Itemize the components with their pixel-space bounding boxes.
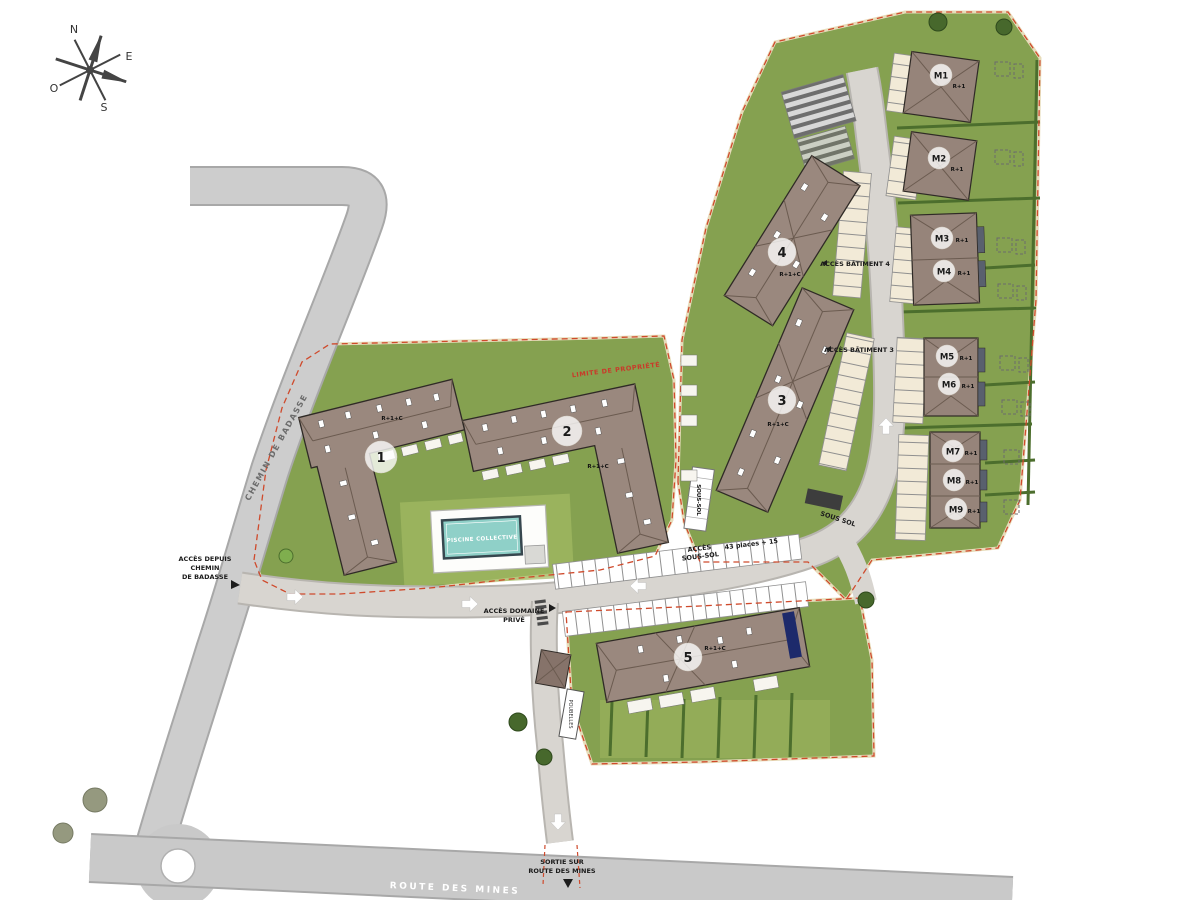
- acces-badasse-line3: DE BADASSE: [182, 573, 228, 581]
- house-m3-number: M3: [935, 235, 949, 245]
- compass-s: S: [101, 101, 108, 114]
- building-2-storeys: R+1+C: [587, 464, 608, 470]
- building-4-number: 4: [777, 246, 786, 261]
- acces-badasse-line2: CHEMIN: [191, 564, 220, 572]
- site-plan-svg: PISCINE COLLECTIVE SOUS-SOL 1 R+1+C: [0, 0, 1200, 900]
- acces-bat4-label: ACCÈS BÂTIMENT 4: [820, 259, 890, 268]
- house-m8-number: M8: [947, 477, 961, 487]
- acces-domaine-line2: PRIVÉ: [503, 615, 525, 624]
- building-1-storeys: R+1+C: [381, 416, 402, 422]
- house-m6-number: M6: [942, 381, 956, 391]
- house-m4-storeys: R+1: [958, 271, 971, 277]
- house-m6-storeys: R+1: [962, 384, 975, 390]
- building-1-number: 1: [376, 451, 385, 466]
- pool-tech-pad: [524, 545, 545, 564]
- pool-area: PISCINE COLLECTIVE: [431, 505, 549, 573]
- house-m2-number: M2: [932, 155, 946, 165]
- house-m1-number: M1: [934, 72, 948, 82]
- compass-n: N: [70, 23, 78, 36]
- house-m3-storeys: R+1: [956, 238, 969, 244]
- parking-m7-m9: [895, 435, 929, 541]
- house-m9-number: M9: [949, 506, 963, 516]
- house-m7-storeys: R+1: [965, 451, 978, 457]
- ramp-label: SOUS-SOL: [695, 484, 701, 516]
- building-5-annex: [535, 650, 570, 689]
- house-m3-m4: [910, 213, 986, 305]
- building-5-number: 5: [683, 651, 692, 666]
- house-m8-storeys: R+1: [966, 480, 979, 486]
- building-5-storeys: R+1+C: [704, 646, 725, 652]
- building-3-number: 3: [777, 394, 786, 409]
- parking-m5-m6: [893, 337, 927, 423]
- compass-rose: N E O S: [46, 23, 137, 114]
- house-m2-storeys: R+1: [951, 167, 964, 173]
- waste-point-label: POUBELLES: [567, 699, 573, 728]
- house-m5-number: M5: [940, 353, 954, 363]
- building-4-storeys: R+1+C: [779, 272, 800, 278]
- sortie-line2: ROUTE DES MINES: [528, 867, 595, 875]
- compass-e: E: [126, 50, 133, 63]
- building-2-number: 2: [562, 425, 571, 440]
- compass-o: O: [50, 82, 59, 95]
- acces-bat3-label: ACCÈS BÂTIMENT 3: [824, 345, 894, 354]
- house-m4-number: M4: [937, 268, 951, 278]
- house-m1-storeys: R+1: [953, 84, 966, 90]
- site-plan: PISCINE COLLECTIVE SOUS-SOL 1 R+1+C: [0, 0, 1200, 900]
- sortie-line1: SORTIE SUR: [540, 858, 583, 866]
- building-3-storeys: R+1+C: [767, 422, 788, 428]
- house-m1: [903, 52, 979, 123]
- acces-badasse-line1: ACCÈS DEPUIS: [179, 554, 232, 563]
- roundabout-island: [161, 849, 195, 883]
- house-m9-storeys: R+1: [968, 509, 981, 515]
- acces-domaine-line1: ACCÈS DOMAINE: [484, 606, 545, 615]
- house-m5-storeys: R+1: [960, 356, 973, 362]
- house-m7-number: M7: [946, 448, 960, 458]
